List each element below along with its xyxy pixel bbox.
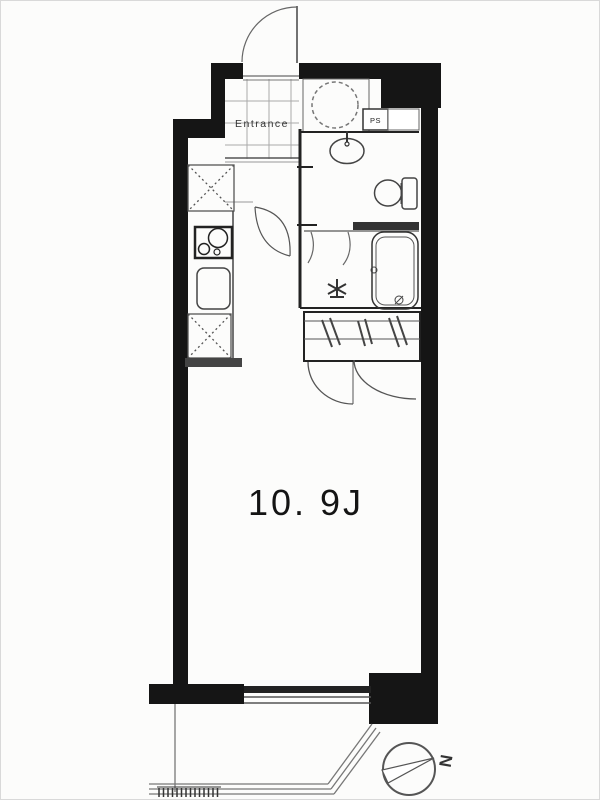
wall-bottom-left-pier xyxy=(149,684,244,704)
bathtub xyxy=(372,232,418,309)
pipe-space-label: PS xyxy=(370,116,381,125)
floor-plan-page: Entrance PS xyxy=(0,0,600,800)
hall-door xyxy=(255,207,290,256)
compass-needle xyxy=(382,758,434,783)
bathroom-shelf xyxy=(353,222,419,230)
wall-bottom-right-pier xyxy=(369,673,438,724)
sliding-window xyxy=(244,686,371,703)
closet-doors xyxy=(308,360,416,404)
kitchen xyxy=(185,165,242,367)
powder-room xyxy=(330,131,417,209)
compass-north-label: N xyxy=(435,753,456,768)
refrigerator-space xyxy=(188,165,234,211)
washbasin-tap-head xyxy=(345,142,349,146)
wall-left xyxy=(173,119,188,704)
bath-folding-door-left xyxy=(308,232,313,263)
bathroom xyxy=(308,232,418,309)
closet xyxy=(304,312,420,404)
counter-end-bar xyxy=(185,358,242,367)
kitchen-sink xyxy=(197,268,230,309)
bathtub-inner xyxy=(376,237,414,305)
washer-space-box xyxy=(303,79,369,132)
entrance-area: Entrance xyxy=(225,6,299,202)
stove xyxy=(195,227,232,258)
partition-walls xyxy=(297,129,421,308)
balcony xyxy=(149,704,380,797)
wall-right xyxy=(421,63,438,724)
entrance-door-swing-arc xyxy=(242,7,297,62)
bathtub-drain xyxy=(395,296,403,304)
washing-machine xyxy=(312,82,358,128)
toilet xyxy=(375,178,418,209)
bath-folding-door-right xyxy=(343,232,350,265)
meter-box xyxy=(388,109,419,130)
room-area-label: 10. 9J xyxy=(248,482,364,523)
storage-space xyxy=(188,314,231,358)
floor-plan-drawing: Entrance PS xyxy=(1,1,600,800)
shower-mixer-tap xyxy=(328,279,346,297)
north-compass: N xyxy=(382,743,456,795)
entrance-door xyxy=(242,6,299,80)
entrance-label: Entrance xyxy=(235,118,289,130)
